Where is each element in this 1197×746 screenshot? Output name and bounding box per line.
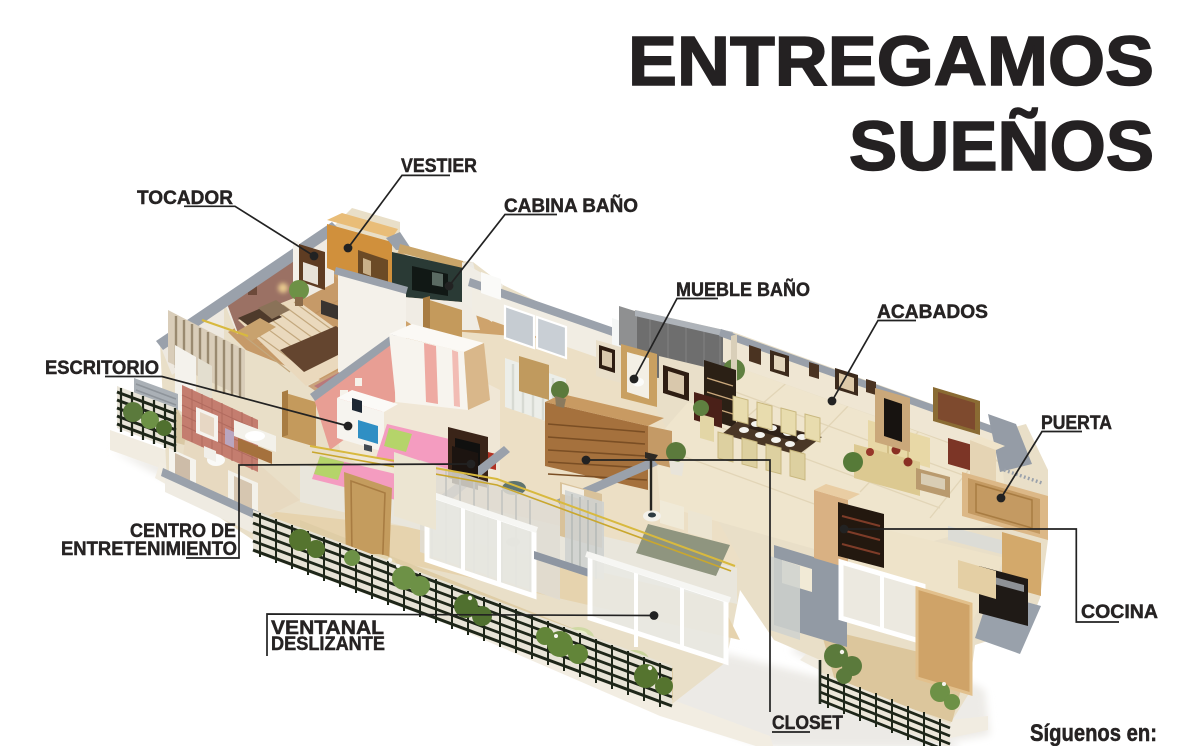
svg-text:COCINA: COCINA bbox=[1081, 602, 1158, 623]
svg-text:DESLIZANTE: DESLIZANTE bbox=[271, 634, 385, 655]
svg-text:ENTRETENIMIENTO: ENTRETENIMIENTO bbox=[61, 539, 237, 560]
svg-text:ACABADOS: ACABADOS bbox=[877, 302, 988, 323]
svg-text:TOCADOR: TOCADOR bbox=[137, 188, 233, 209]
svg-text:SUEÑOS: SUEÑOS bbox=[849, 107, 1154, 185]
svg-text:MUEBLE BAÑO: MUEBLE BAÑO bbox=[676, 279, 810, 301]
svg-text:ESCRITORIO: ESCRITORIO bbox=[45, 358, 159, 379]
svg-text:CABINA BAÑO: CABINA BAÑO bbox=[504, 195, 638, 217]
svg-text:PUERTA: PUERTA bbox=[1041, 413, 1112, 434]
svg-text:ENTREGAMOS: ENTREGAMOS bbox=[628, 22, 1154, 100]
svg-text:CLOSET: CLOSET bbox=[772, 713, 843, 734]
svg-text:Síguenos en:: Síguenos en: bbox=[1030, 720, 1157, 746]
svg-text:VESTIER: VESTIER bbox=[401, 156, 477, 177]
